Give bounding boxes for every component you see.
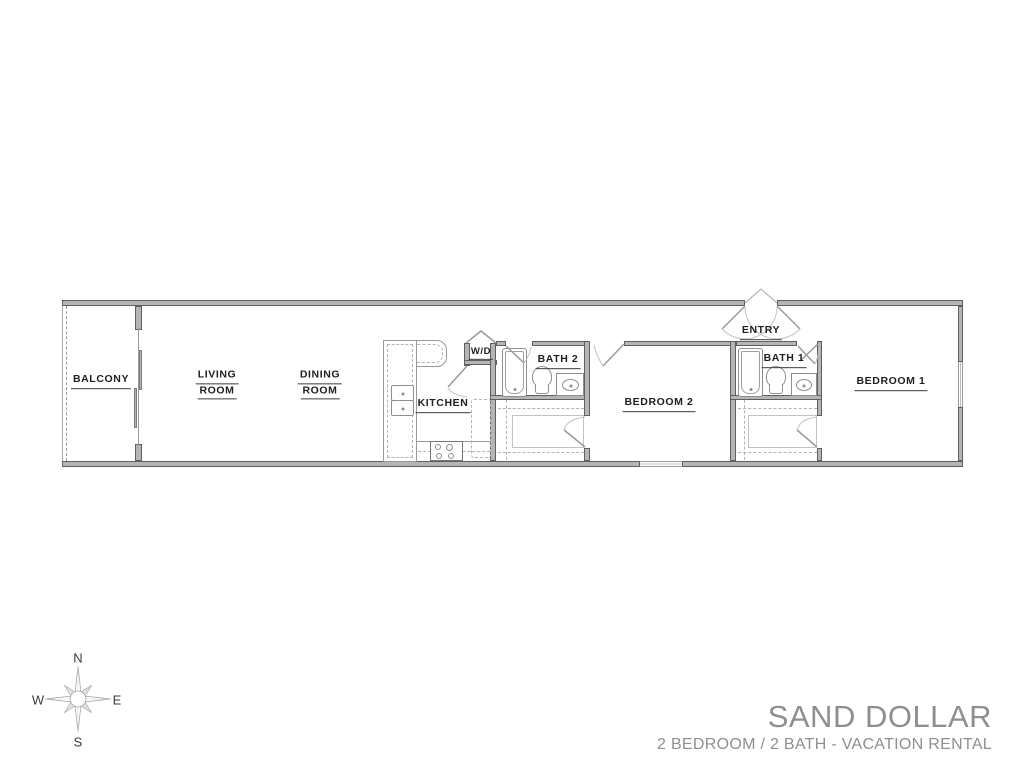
room-label-kitchen: KITCHEN [416, 397, 471, 413]
plan-subtitle: 2 BEDROOM / 2 BATH - VACATION RENTAL [657, 736, 992, 754]
wall [62, 461, 640, 467]
compass-west-label: W [32, 693, 44, 708]
window-bedroom1 [958, 362, 963, 407]
room-label-bath2: BATH 2 [536, 353, 581, 369]
room-label-bath1: BATH 1 [762, 352, 807, 368]
wall [682, 461, 963, 467]
bathtub-icon [502, 348, 527, 397]
kitchen-sink-basin [391, 385, 414, 401]
door-arc [594, 345, 603, 366]
wall [135, 444, 142, 461]
window-bedroom2 [640, 461, 682, 467]
title-block: SAND DOLLAR 2 BEDROOM / 2 BATH - VACATIO… [657, 701, 992, 754]
wall [532, 341, 590, 346]
wall [624, 341, 736, 346]
wall [730, 341, 736, 461]
wall [584, 341, 590, 416]
room-label-wd: W/D [469, 346, 493, 360]
wall [736, 341, 797, 346]
room-label-entry: ENTRY [740, 324, 782, 340]
entry-stoop-peak [745, 289, 777, 303]
wall [817, 448, 822, 461]
bifold-door-icon [466, 331, 496, 343]
wall [62, 300, 745, 306]
wall [584, 448, 590, 461]
refrigerator-dashed [471, 399, 491, 458]
room-label-bedroom1: BEDROOM 1 [855, 375, 928, 391]
compass-east-label: E [113, 693, 122, 708]
sliding-door-panel [134, 388, 137, 428]
compass-rose-icon [45, 666, 111, 732]
kitchen-sink-basin [391, 400, 414, 416]
wall [135, 306, 142, 330]
room-label-dining-room: DINING ROOM [298, 368, 342, 399]
compass-north-label: N [73, 651, 82, 666]
compass-south-label: S [74, 735, 83, 750]
floor-plan-sheet: BALCONY LIVING ROOM DINING ROOM KITCHEN … [0, 0, 1024, 768]
door-leaf [603, 344, 624, 366]
room-label-bedroom2: BEDROOM 2 [623, 396, 696, 412]
sliding-door-panel [139, 350, 142, 390]
balcony-railing [62, 306, 63, 461]
wall [817, 341, 822, 416]
room-label-living-room: LIVING ROOM [196, 368, 239, 399]
balcony-railing-dashed [66, 306, 67, 461]
vanity-sink-icon [791, 373, 817, 396]
wall [958, 407, 963, 461]
door-leaf [448, 366, 467, 387]
wall [496, 341, 506, 346]
toilet-icon [765, 366, 787, 396]
vanity-sink-icon [556, 373, 584, 396]
wall [777, 300, 963, 306]
plan-title: SAND DOLLAR [657, 701, 992, 734]
range-icon [430, 441, 463, 461]
bathtub-icon [738, 348, 763, 397]
wall [958, 306, 963, 362]
door-arc [448, 388, 467, 397]
room-label-balcony: BALCONY [71, 373, 131, 389]
toilet-icon [531, 366, 553, 396]
